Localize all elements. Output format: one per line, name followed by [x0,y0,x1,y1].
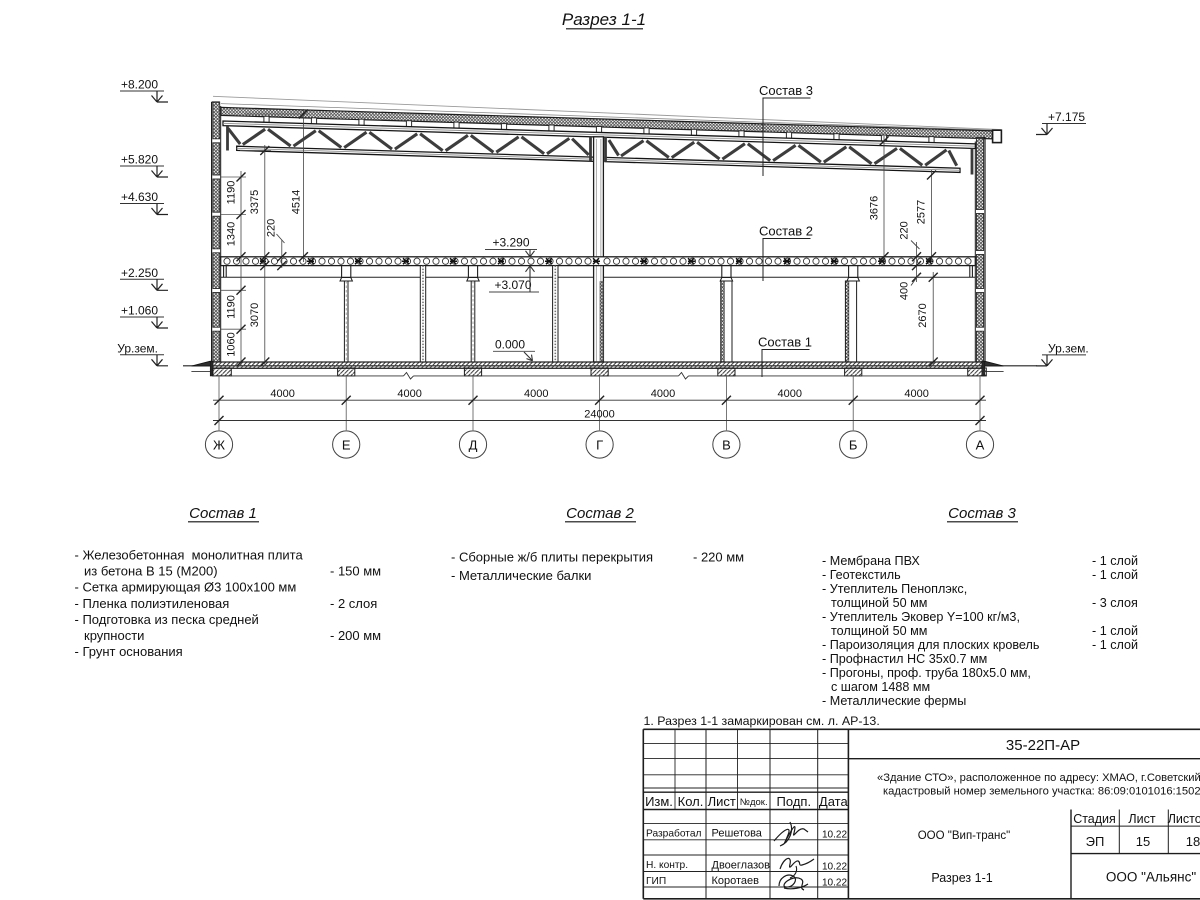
svg-text:толщиной 50 мм: толщиной 50 мм [831,624,927,638]
svg-text:15: 15 [1136,834,1150,849]
svg-text:18: 18 [1186,834,1200,849]
svg-text:крупности: крупности [84,628,144,643]
svg-text:1190: 1190 [226,295,238,319]
svg-text:Н. контр.: Н. контр. [646,860,688,871]
svg-text:- Утеплитель Пеноплэкс,: - Утеплитель Пеноплэкс, [822,582,967,596]
svg-text:+8.200: +8.200 [121,78,158,92]
svg-text:2670: 2670 [917,303,929,327]
svg-text:из бетона В 15 (М200): из бетона В 15 (М200) [84,564,218,579]
svg-text:4514: 4514 [291,190,303,214]
svg-text:1340: 1340 [226,222,238,246]
svg-text:толщиной 50 мм: толщиной 50 мм [831,596,927,610]
svg-text:Состав 1: Состав 1 [758,335,812,350]
svg-text:ООО "Вип-транс": ООО "Вип-транс" [918,830,1011,842]
svg-text:- Металлические фермы: - Металлические фермы [822,694,966,708]
svg-text:Состав 2: Состав 2 [759,224,813,239]
svg-text:Ж: Ж [213,437,225,452]
svg-text:- Подготовка из песка средней: - Подготовка из песка средней [75,612,259,627]
svg-text:Стадия: Стадия [1073,812,1116,826]
svg-text:+3.070: +3.070 [494,278,531,292]
svg-text:А: А [976,437,985,452]
svg-text:- 150 мм: - 150 мм [330,564,381,579]
svg-text:Двоеглазов: Двоеглазов [712,860,771,872]
svg-text:- 3 слоя: - 3 слоя [1092,596,1138,610]
svg-text:4000: 4000 [904,388,928,400]
svg-text:24000: 24000 [584,409,615,421]
svg-text:- 1 слой: - 1 слой [1092,638,1138,652]
svg-text:- 1 слой: - 1 слой [1092,568,1138,582]
svg-text:+5.820: +5.820 [121,153,158,167]
svg-text:- Сетка армирующая Ø3 100х100: - Сетка армирующая Ø3 100х100 мм [75,580,297,595]
svg-text:Разработал: Разработал [646,828,702,840]
svg-text:Изм.: Изм. [645,794,673,809]
svg-text:Листов: Листов [1168,812,1200,826]
svg-text:1190: 1190 [226,181,238,205]
svg-text:№док.: №док. [740,797,768,808]
svg-text:- Пленка полиэтиленовая: - Пленка полиэтиленовая [75,596,230,611]
svg-text:Ур.зем.: Ур.зем. [1048,341,1089,355]
svg-text:10.22: 10.22 [822,878,847,889]
svg-text:220: 220 [266,219,278,237]
svg-text:+1.060: +1.060 [121,304,158,318]
svg-text:3676: 3676 [869,196,881,220]
svg-text:4000: 4000 [397,388,421,400]
svg-text:Кол.: Кол. [678,794,704,809]
svg-text:4000: 4000 [651,388,675,400]
svg-text:Ур.зем.: Ур.зем. [117,341,158,355]
svg-text:Состав 3: Состав 3 [759,83,813,98]
svg-text:4000: 4000 [270,388,294,400]
svg-text:Состав 1: Состав 1 [189,505,257,522]
svg-text:Разрез 1-1: Разрез 1-1 [562,10,646,29]
svg-text:- 1 слой: - 1 слой [1092,624,1138,638]
svg-text:«Здание СТО», расположенное по: «Здание СТО», расположенное по адресу: Х… [877,772,1200,784]
svg-text:+3.290: +3.290 [492,236,529,250]
svg-text:Д: Д [469,437,478,452]
svg-text:Лист: Лист [1128,812,1155,826]
svg-text:- Грунт основания: - Грунт основания [75,644,183,659]
svg-text:0.000: 0.000 [495,338,525,352]
svg-text:- Профнастил НС 35х0.7 мм: - Профнастил НС 35х0.7 мм [822,652,987,666]
svg-text:- Утеплитель Эковер Y=100 кг/м: - Утеплитель Эковер Y=100 кг/м3, [822,610,1020,624]
svg-text:Состав 3: Состав 3 [948,505,1016,522]
svg-text:- Сборные ж/б плиты перекрытия: - Сборные ж/б плиты перекрытия [451,550,653,565]
svg-text:кадастровый номер земельного у: кадастровый номер земельного участка: 86… [883,786,1200,798]
svg-text:Решетова: Решетова [712,828,763,840]
svg-text:400: 400 [899,282,911,300]
svg-text:+4.630: +4.630 [121,190,158,204]
svg-text:3375: 3375 [249,190,261,214]
svg-text:- 200 мм: - 200 мм [330,628,381,643]
svg-text:- 220 мм: - 220 мм [693,550,744,565]
svg-text:ООО "Альянс": ООО "Альянс" [1106,870,1196,885]
svg-text:ГИП: ГИП [646,876,666,887]
svg-text:- Геотекстиль: - Геотекстиль [822,568,901,582]
svg-text:Б: Б [849,437,858,452]
svg-text:- Пароизоляция для плоских кро: - Пароизоляция для плоских кровель [822,638,1040,652]
svg-text:- 1 слой: - 1 слой [1092,554,1138,568]
svg-text:4000: 4000 [524,388,548,400]
svg-text:Состав 2: Состав 2 [566,505,634,522]
svg-text:10.22: 10.22 [822,830,847,841]
svg-text:с шагом 1488 мм: с шагом 1488 мм [831,680,930,694]
svg-text:Коротаев: Коротаев [712,875,760,887]
svg-text:- Металлические балки: - Металлические балки [451,568,591,583]
svg-text:Г: Г [596,437,603,452]
svg-text:2577: 2577 [916,200,928,224]
svg-text:В: В [722,437,731,452]
svg-text:+2.250: +2.250 [121,266,158,280]
svg-text:35-22П-АР: 35-22П-АР [1006,737,1080,754]
svg-text:Лист: Лист [708,794,736,809]
svg-text:+7.175: +7.175 [1048,110,1085,124]
svg-text:3070: 3070 [249,303,261,327]
svg-text:Дата: Дата [819,794,849,809]
svg-text:220: 220 [899,221,911,239]
svg-text:- 2 слоя: - 2 слоя [330,596,377,611]
svg-text:- Железобетонная монолитная п: - Железобетонная монолитная плита [75,548,304,563]
svg-text:- Мембрана ПВХ: - Мембрана ПВХ [822,554,920,568]
svg-text:- Прогоны, проф. труба 180х5.0: - Прогоны, проф. труба 180х5.0 мм, [822,666,1031,680]
svg-text:Е: Е [342,437,351,452]
svg-text:4000: 4000 [778,388,802,400]
svg-text:ЭП: ЭП [1086,834,1105,849]
svg-text:Разрез 1-1: Разрез 1-1 [931,871,992,885]
svg-text:1. Разрез 1-1 замаркирован см.: 1. Разрез 1-1 замаркирован см. л. АР-13. [644,714,880,728]
svg-text:10.22: 10.22 [822,862,847,873]
svg-text:Подп.: Подп. [777,794,812,809]
svg-text:1060: 1060 [226,332,238,356]
